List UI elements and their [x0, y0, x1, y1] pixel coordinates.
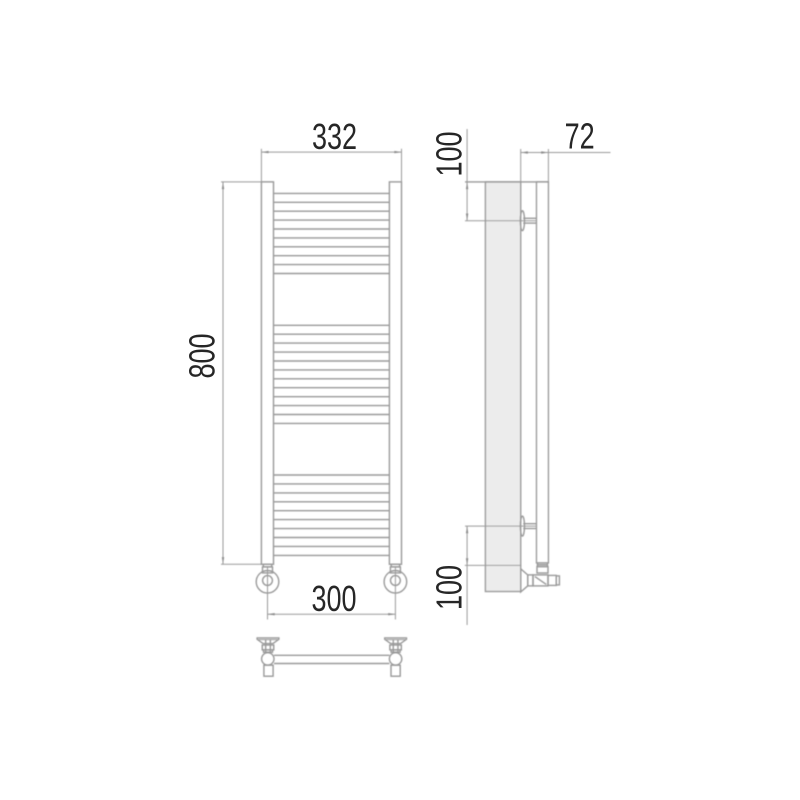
- svg-text:332: 332: [312, 116, 357, 157]
- svg-text:800: 800: [182, 333, 223, 378]
- svg-text:72: 72: [565, 116, 595, 157]
- svg-text:300: 300: [311, 578, 356, 619]
- svg-text:100: 100: [429, 565, 470, 610]
- svg-text:100: 100: [429, 131, 470, 176]
